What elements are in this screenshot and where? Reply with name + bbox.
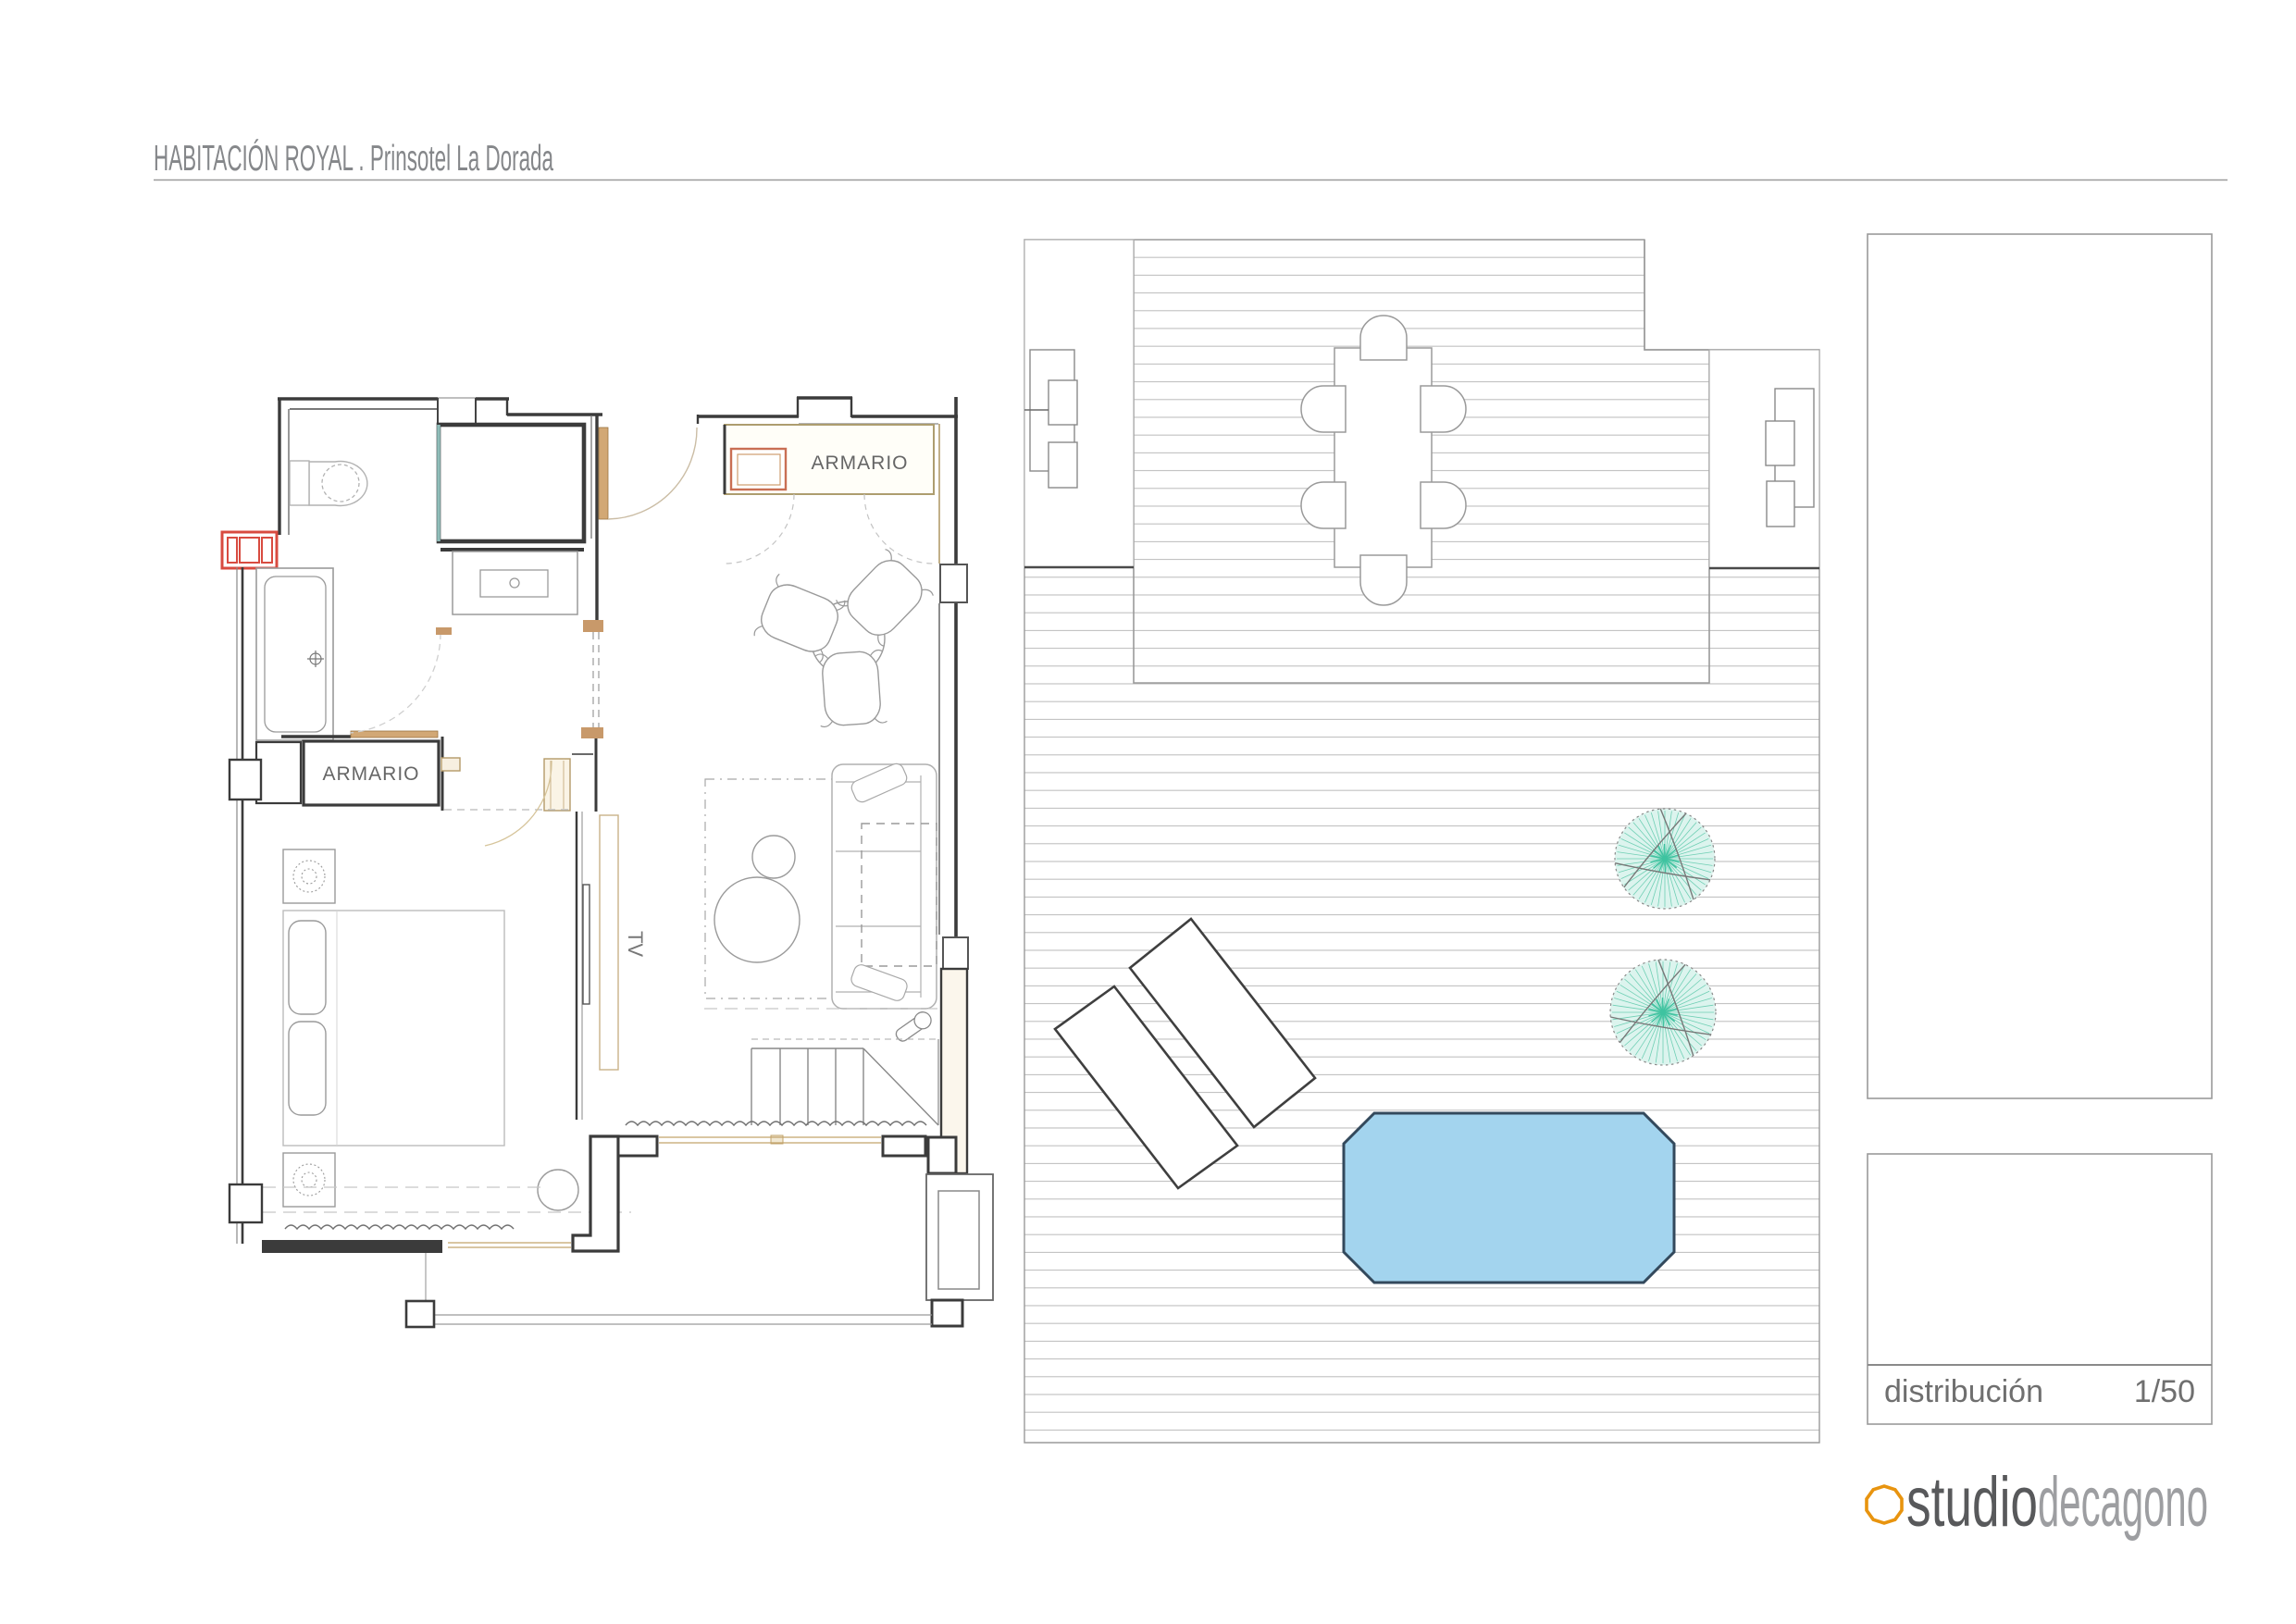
svg-text:HABITACIÓN ROYAL . Prinsotel L: HABITACIÓN ROYAL . Prinsotel La Dorada — [154, 139, 553, 179]
svg-text:distribución: distribución — [1884, 1374, 2043, 1409]
svg-text:decagono: decagono — [2038, 1463, 2208, 1542]
svg-text:TV: TV — [624, 931, 647, 957]
svg-text:studio: studio — [1906, 1463, 2038, 1542]
svg-text:ARMARIO: ARMARIO — [811, 452, 908, 474]
svg-text:1/50: 1/50 — [2134, 1374, 2195, 1409]
svg-text:ARMARIO: ARMARIO — [322, 763, 419, 785]
